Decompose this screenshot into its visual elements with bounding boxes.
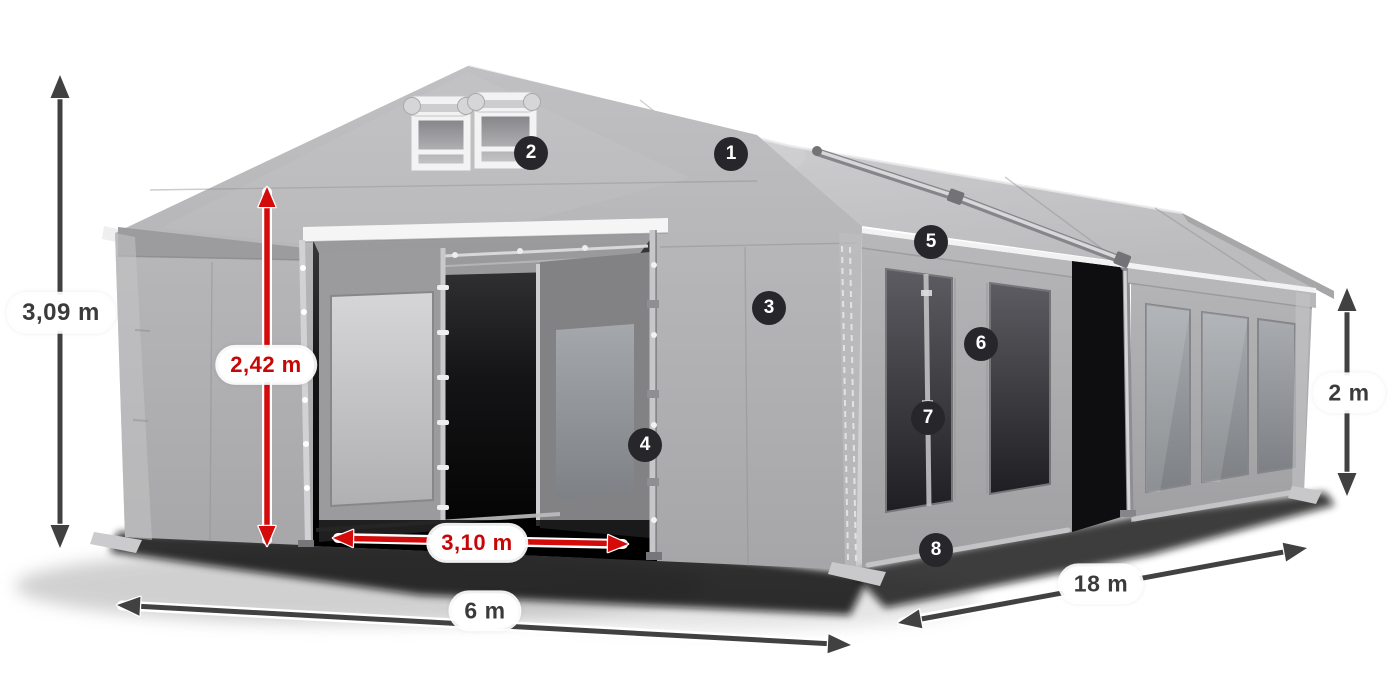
entrance-width-label: 3,10 m	[429, 526, 525, 560]
side-window-1	[886, 269, 952, 512]
callout-badge-4: 4	[628, 428, 662, 462]
side-window-5	[1258, 319, 1295, 473]
front-entrance-interior	[313, 230, 657, 565]
callout-badge-1: 1	[714, 137, 748, 171]
side-doorway-opening	[1072, 261, 1131, 532]
callout-badge-6: 6	[964, 327, 998, 361]
tent-diagram-page: 1 2 3 4 5 6 7 8 3,09 m 2,42 m 3,10 m 6 m…	[0, 0, 1400, 700]
front-width-label: 6 m	[451, 593, 518, 628]
tent-illustration	[0, 0, 1400, 700]
callout-badge-3: 3	[752, 291, 786, 325]
side-leg-pole	[926, 274, 929, 506]
callout-badge-5: 5	[914, 225, 948, 259]
callout-badge-8: 8	[919, 533, 953, 567]
entrance-height-label: 2,42 m	[218, 348, 314, 382]
ridge-height-label: 3,09 m	[9, 295, 113, 331]
door-leaf-window	[331, 292, 433, 506]
side-height-label: 2 m	[1315, 375, 1382, 410]
side-window-2	[990, 283, 1050, 494]
gable-vent-left	[404, 96, 475, 167]
side-length-label: 18 m	[1061, 566, 1141, 601]
callout-badge-2: 2	[514, 136, 548, 170]
callout-badge-7: 7	[911, 401, 945, 435]
